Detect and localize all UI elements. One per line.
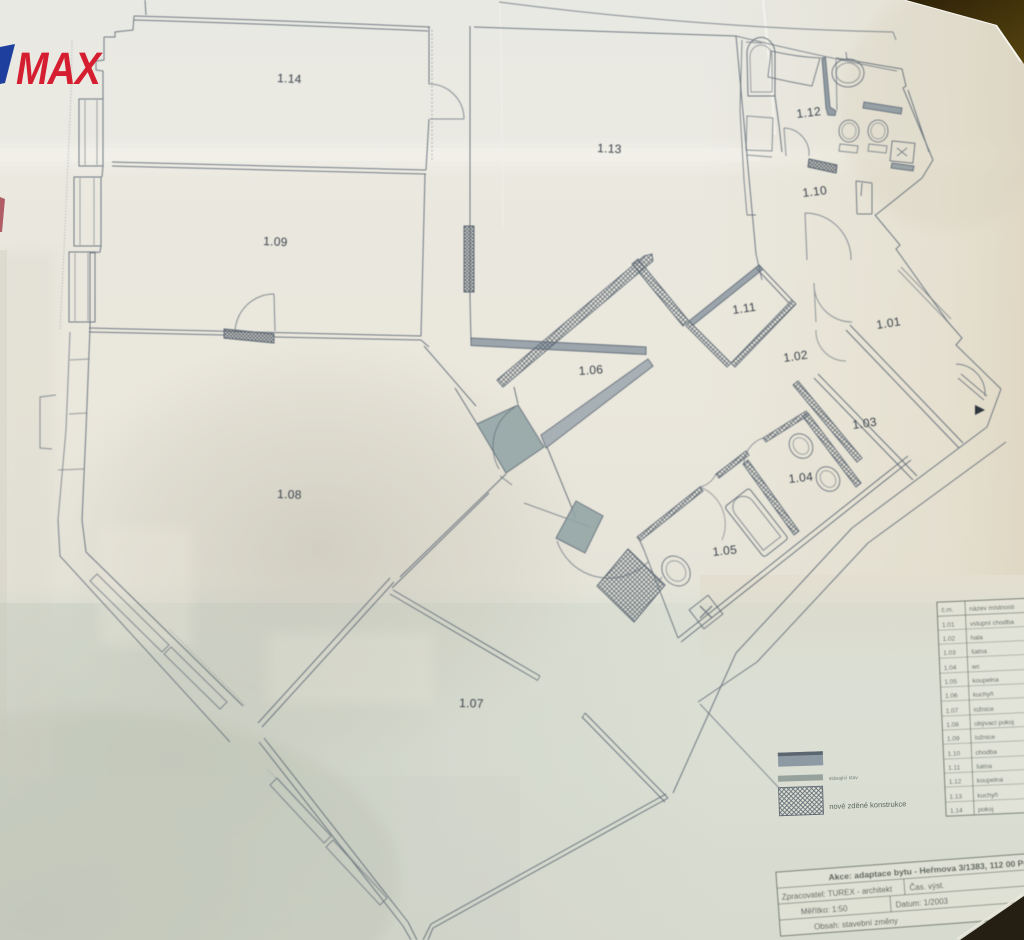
svg-text:1.06: 1.06 xyxy=(578,362,603,378)
svg-text:1.07: 1.07 xyxy=(459,696,484,711)
svg-text:1.06: 1.06 xyxy=(945,692,958,700)
svg-text:1.04: 1.04 xyxy=(788,469,814,485)
svg-text:šatna: šatna xyxy=(971,648,988,656)
svg-text:1.13: 1.13 xyxy=(949,793,962,801)
svg-text:1.08: 1.08 xyxy=(277,487,302,502)
svg-text:koupelna: koupelna xyxy=(972,677,999,685)
svg-text:1.10: 1.10 xyxy=(802,183,828,200)
svg-text:MAX: MAX xyxy=(16,43,103,94)
svg-text:1.05: 1.05 xyxy=(944,678,957,686)
svg-text:stávající stav: stávající stav xyxy=(829,775,859,782)
svg-text:1.05: 1.05 xyxy=(712,542,738,558)
svg-text:1.08: 1.08 xyxy=(946,721,959,729)
svg-text:1.01: 1.01 xyxy=(942,622,955,630)
svg-text:kuchyň: kuchyň xyxy=(977,792,998,800)
svg-text:ložnice: ložnice xyxy=(974,706,995,714)
svg-text:1.03: 1.03 xyxy=(943,650,956,658)
svg-text:koupelna: koupelna xyxy=(977,777,1004,785)
svg-text:1.14: 1.14 xyxy=(950,807,963,815)
svg-text:1.04: 1.04 xyxy=(944,665,957,673)
svg-text:chodba: chodba xyxy=(975,749,997,757)
svg-text:kuchyň: kuchyň xyxy=(973,691,994,699)
svg-text:1.12: 1.12 xyxy=(949,778,962,786)
svg-text:1.02: 1.02 xyxy=(942,636,955,644)
svg-text:č.m.: č.m. xyxy=(941,607,954,615)
svg-text:1.13: 1.13 xyxy=(597,141,622,156)
svg-text:1.14: 1.14 xyxy=(277,71,302,86)
svg-text:pokoj: pokoj xyxy=(978,806,994,814)
svg-text:ložnice: ložnice xyxy=(975,734,996,742)
svg-text:1.10: 1.10 xyxy=(947,750,960,758)
svg-text:1.07: 1.07 xyxy=(946,707,959,715)
svg-text:1.11: 1.11 xyxy=(948,764,961,772)
svg-text:1.12: 1.12 xyxy=(796,104,822,121)
svg-text:1.09: 1.09 xyxy=(263,234,288,249)
svg-text:hala: hala xyxy=(970,634,983,642)
svg-text:wc: wc xyxy=(971,663,981,670)
svg-text:šatna: šatna xyxy=(976,763,993,771)
svg-text:1.09: 1.09 xyxy=(947,735,960,743)
